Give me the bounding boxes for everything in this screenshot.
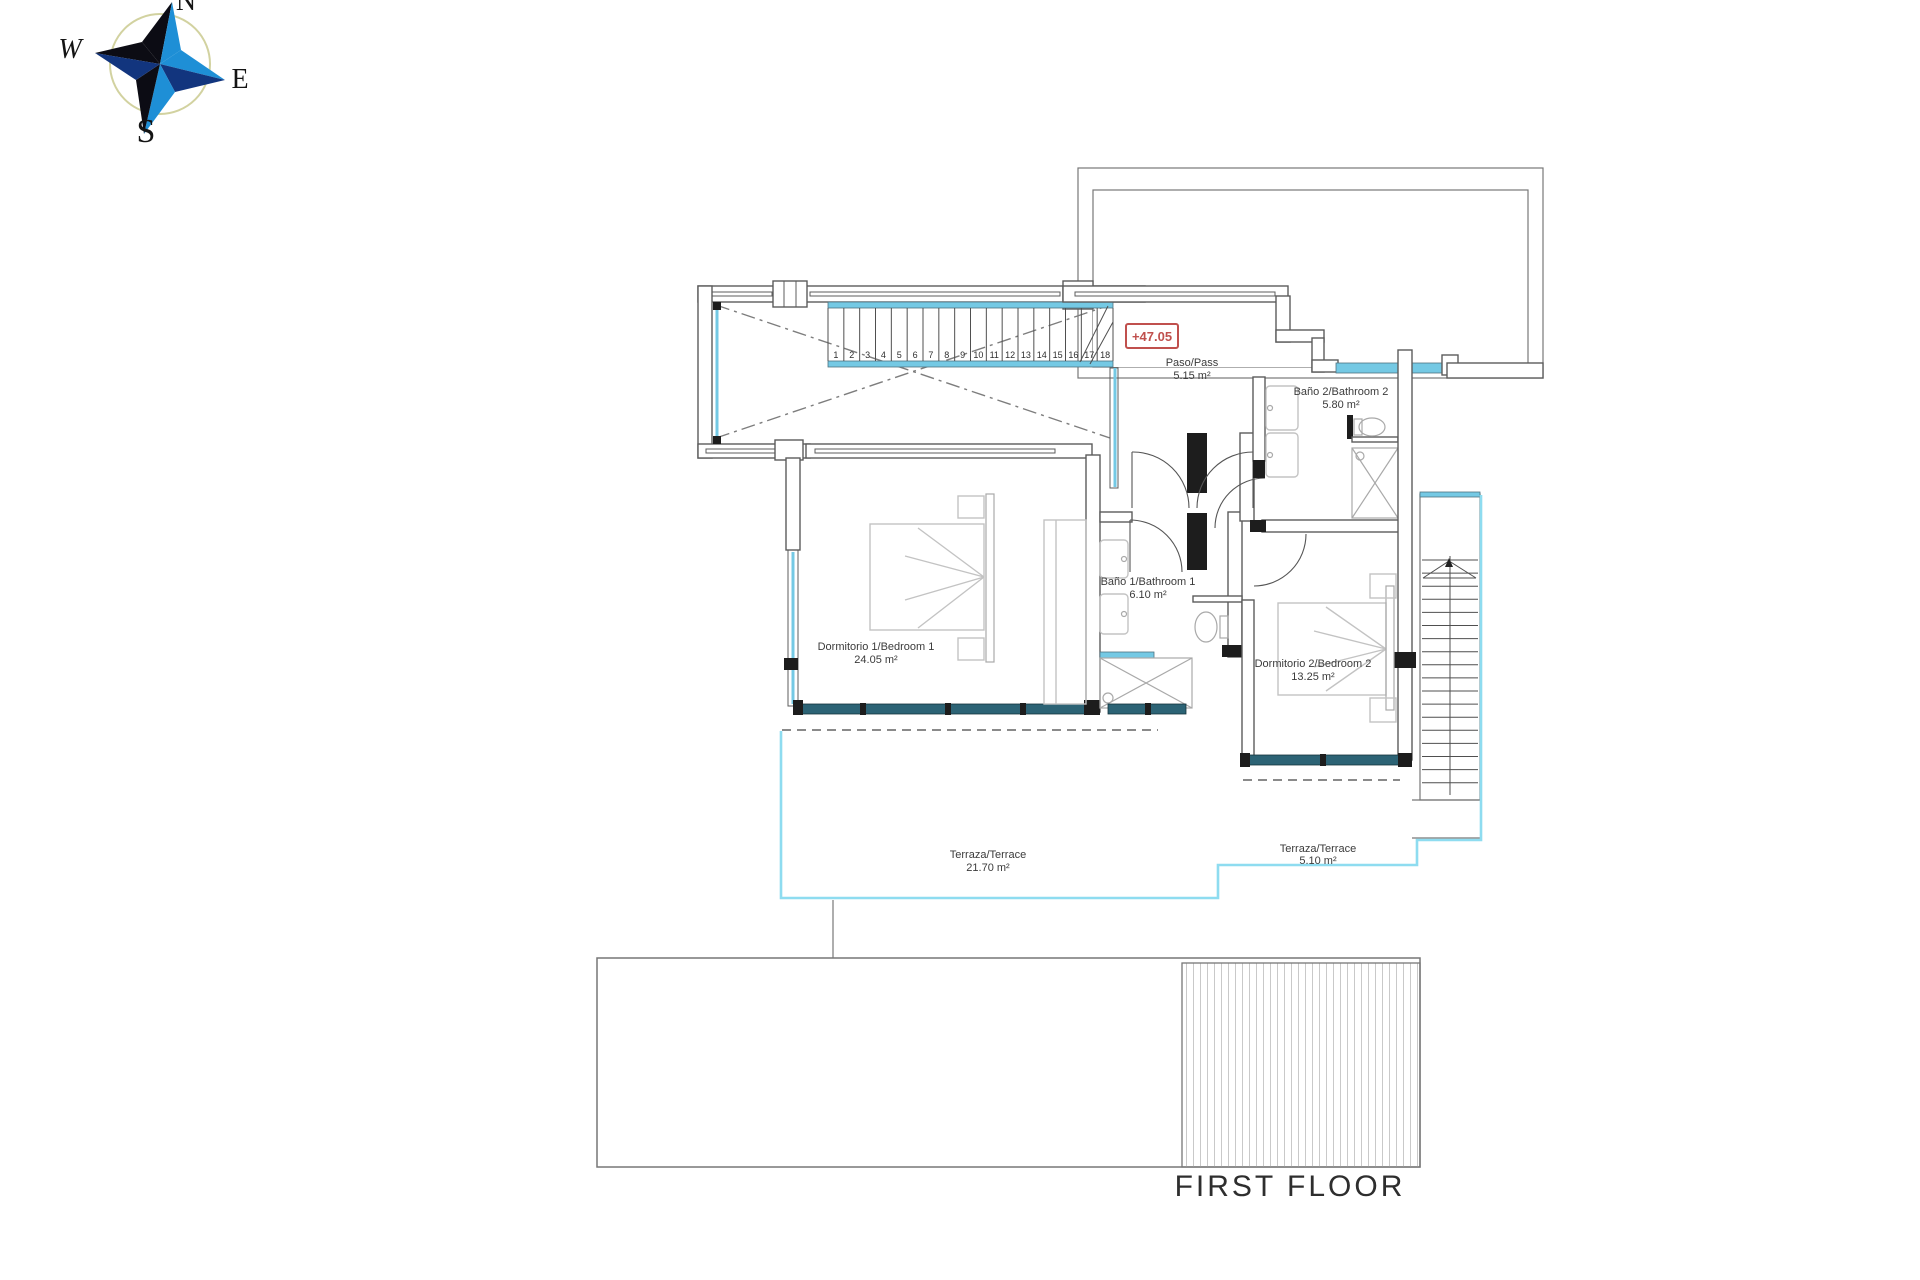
room-area-paso: 5.15 m² (1173, 370, 1211, 382)
room-area-terrace1: 21.70 m² (966, 862, 1010, 874)
room-area-bedroom2: 13.25 m² (1291, 671, 1335, 683)
door-arc-bedroom1 (1132, 452, 1189, 508)
bathroom1 (1100, 512, 1242, 715)
compass-west-label: W (58, 34, 84, 65)
toilet-icon (1195, 612, 1228, 642)
shower-icon (1100, 652, 1192, 708)
room-label-bathroom2: Baño 2/Bathroom 2 (1294, 386, 1389, 398)
stair-glass-top (828, 302, 1113, 308)
stair-tread-number: 7 (928, 350, 933, 360)
stair-tread-number: 2 (849, 350, 854, 360)
stair-tread-number: 8 (944, 350, 949, 360)
stair-tread-number: 9 (960, 350, 965, 360)
room-area-bathroom2: 5.80 m² (1322, 399, 1360, 411)
room-labels: Paso/Pass 5.15 m² Baño 2/Bathroom 2 5.80… (818, 357, 1389, 874)
exterior-stair (1412, 492, 1480, 838)
compass-south-label: S (137, 113, 156, 150)
sink-icon (1266, 386, 1298, 477)
stair-glass-bottom (828, 361, 1113, 367)
bathroom2-window (1336, 363, 1442, 373)
door-arc-bathroom1 (1130, 520, 1182, 572)
bedroom1 (784, 444, 1100, 715)
room-label-paso: Paso/Pass (1166, 357, 1219, 369)
wardrobe-1 (1044, 520, 1086, 704)
stair-tread-number: 3 (865, 350, 870, 360)
room-label-bathroom1: Baño 1/Bathroom 1 (1101, 576, 1196, 588)
stair-tread-number: 14 (1037, 350, 1047, 360)
stair-tread-number: 13 (1021, 350, 1031, 360)
stair-tread-number: 6 (913, 350, 918, 360)
bed-1 (870, 494, 994, 662)
stair-tread-number: 15 (1053, 350, 1063, 360)
compass-north-label: N (176, 0, 196, 17)
terrace-railing (781, 495, 1481, 898)
floor-plan-page: 123456789101112131415161718 +47.05 (0, 0, 1920, 1280)
bedroom1-window-band (798, 704, 1088, 714)
doors (1130, 433, 1306, 586)
room-label-bedroom1: Dormitorio 1/Bedroom 1 (818, 641, 935, 653)
stair-tread-number: 5 (897, 350, 902, 360)
door-arc-bedroom2 (1254, 534, 1306, 586)
room-area-bathroom1: 6.10 m² (1129, 589, 1167, 601)
room-label-terrace1: Terraza/Terrace (950, 849, 1026, 861)
shower-icon (1352, 448, 1398, 518)
toilet-icon (1354, 418, 1385, 436)
floor-plan-drawing: 123456789101112131415161718 +47.05 (0, 0, 1920, 1280)
room-area-bedroom1: 24.05 m² (854, 654, 898, 666)
stair-tread-number: 11 (990, 350, 999, 360)
hatched-roof-section (1182, 963, 1420, 1167)
page-title: FIRST FLOOR (1175, 1170, 1406, 1203)
elevation-value: +47.05 (1132, 329, 1172, 344)
bed-2 (1278, 574, 1396, 722)
terraces (781, 495, 1481, 898)
stair-tread-number: 10 (973, 350, 983, 360)
stair-tread-number: 4 (881, 350, 886, 360)
elevation-marker: +47.05 (1126, 324, 1178, 348)
stair-tread-number: 16 (1068, 350, 1078, 360)
room-label-bedroom2: Dormitorio 2/Bedroom 2 (1255, 658, 1372, 670)
stair-tread-number: 18 (1100, 350, 1110, 360)
lower-roof (597, 900, 1420, 1167)
compass-rose: N W E S (58, 0, 248, 150)
room-label-terrace2: Terraza/Terrace (1280, 843, 1356, 855)
compass-east-label: E (231, 64, 248, 95)
room-area-terrace2: 5.10 m² (1299, 855, 1337, 867)
stair-tread-number: 12 (1005, 350, 1015, 360)
stair-tread-number: 1 (833, 350, 838, 360)
